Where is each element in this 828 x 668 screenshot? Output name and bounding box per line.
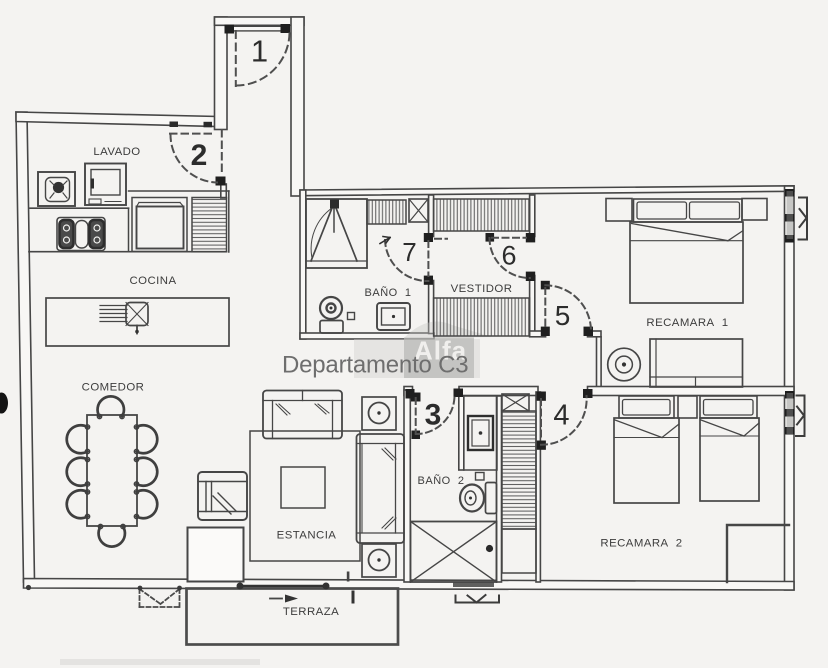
svg-text:COMEDOR: COMEDOR [82, 382, 145, 394]
svg-text:BAÑO 1: BAÑO 1 [365, 286, 412, 299]
svg-text:1: 1 [251, 34, 268, 69]
svg-text:5: 5 [555, 300, 571, 331]
svg-text:ESTANCIA: ESTANCIA [277, 530, 337, 542]
svg-text:4: 4 [553, 400, 569, 432]
svg-text:RECAMARA 1: RECAMARA 1 [646, 317, 728, 329]
svg-text:6: 6 [501, 241, 516, 271]
svg-text:COCINA: COCINA [130, 275, 177, 287]
svg-text:TERRAZA: TERRAZA [283, 606, 339, 618]
svg-text:RECAMARA 2: RECAMARA 2 [600, 538, 682, 550]
svg-text:VESTIDOR: VESTIDOR [451, 283, 513, 295]
svg-text:Departamento C3: Departamento C3 [282, 352, 468, 379]
svg-text:LAVADO: LAVADO [93, 146, 140, 158]
svg-text:BAÑO 2: BAÑO 2 [418, 474, 465, 487]
svg-text:3: 3 [425, 399, 442, 432]
svg-text:7: 7 [402, 237, 416, 267]
svg-text:2: 2 [191, 139, 208, 172]
